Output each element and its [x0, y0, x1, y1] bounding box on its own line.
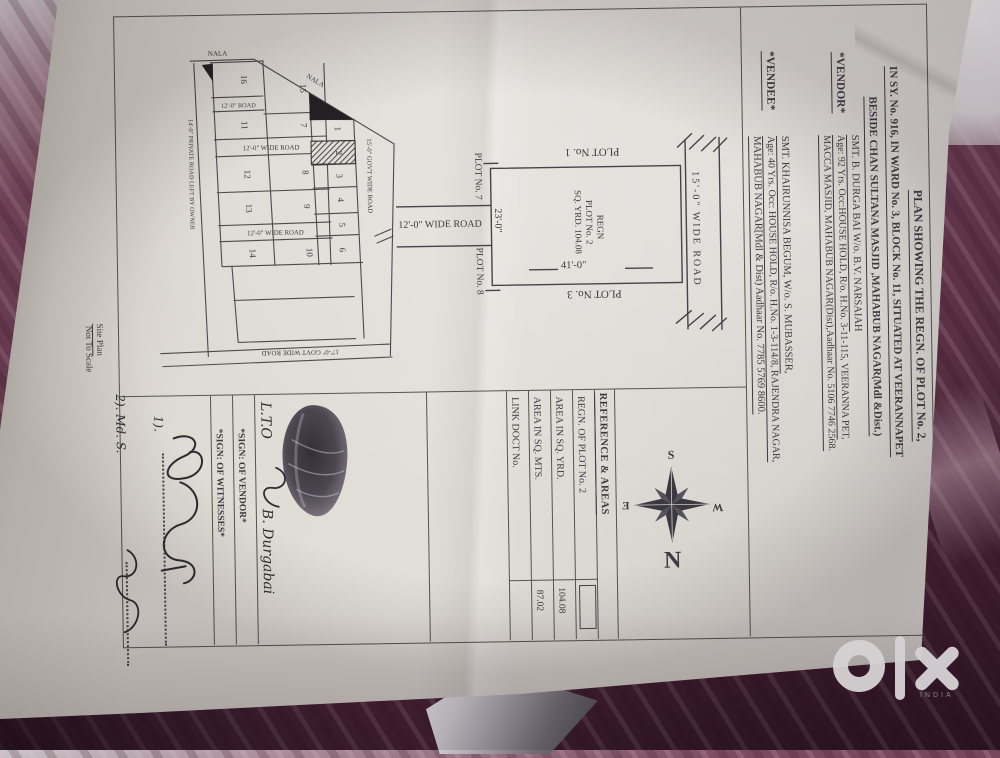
- plot-2-center-area: SQ. YRD. 104.08: [573, 190, 585, 286]
- olx-x: [912, 643, 962, 693]
- plot-number-3: 3: [335, 173, 345, 178]
- compass-e-reversed: Ǝ: [622, 500, 630, 512]
- witness1-signature: [140, 430, 217, 596]
- compass-n: N: [664, 547, 682, 571]
- plot-number-13: 13: [244, 204, 254, 214]
- wide-road-15-label: 15'-0" WIDE ROAD: [690, 171, 703, 311]
- site-plan-map: 16 11 12 13 14 15 7 8 9 10 1 2 3 4 5 6 N…: [145, 32, 400, 376]
- vendee-label: *VENDEE*: [764, 51, 777, 131]
- compass-s: S: [668, 448, 675, 462]
- vendor-handwriting-lto: L.T.O: [257, 402, 274, 472]
- reference-row3-label: AREA IN SQ. MTS.: [531, 397, 544, 545]
- road-label-14-0-private: 14'-0" PRIVATE ROAD LEFT BY OWNER: [187, 119, 196, 231]
- road-line-outer: [719, 137, 722, 330]
- compass-icon: S Ǝ W N: [614, 440, 731, 572]
- plot-number-12: 12: [242, 170, 252, 179]
- olx-o: [833, 640, 885, 692]
- nala-label-1: NALA: [208, 50, 228, 58]
- plot-number-14: 14: [248, 249, 258, 259]
- vendor-handwriting-name: B. Durgabai: [259, 509, 277, 649]
- plot-number-2: 2: [334, 150, 344, 155]
- road-label-15-0-govt: 15'-0" GOVT WIDE ROAD: [365, 138, 373, 213]
- plot-number-1: 1: [333, 127, 343, 132]
- olx-country-label: INDIA: [920, 692, 954, 699]
- plot-number-9: 9: [302, 204, 312, 209]
- plot-number-7: 7: [299, 123, 309, 128]
- road-label-12-0-wide-1: 12'-0" WIDE ROAD: [243, 144, 300, 152]
- road-label-12-0-wide-2: 12'-0" WIDE ROAD: [247, 229, 304, 237]
- plot-no-7-label: PLOT No. 7: [472, 153, 483, 211]
- plot-2-center-plotno: PLOT No. 2: [584, 200, 595, 276]
- reference-row2-label: AREA IN SQ. YRD.: [553, 396, 566, 546]
- road-hatch-bottom: [676, 310, 727, 332]
- reference-row4-label: LINK DOCT No.: [509, 397, 522, 525]
- photo-of-plot-plan-document: { "photo": { "watermark_country": "INDIA…: [0, 0, 1000, 750]
- plot-number-11: 11: [240, 121, 250, 130]
- compass-w-inverted: W: [712, 501, 723, 513]
- reference-row3-value: 87.02: [534, 590, 545, 632]
- hatched-plot-2: [311, 141, 355, 165]
- plot-no-1-label: PLOT No. 1: [545, 145, 639, 158]
- plot-number-10: 10: [305, 248, 315, 258]
- plot-number-8: 8: [300, 170, 310, 175]
- plot-number-6: 6: [338, 247, 348, 252]
- plot-no-3-label: PLOT No. 3: [547, 287, 641, 300]
- corner-filled-triangle: [202, 64, 213, 82]
- site-plan-note-scale: Not To Scale: [84, 326, 95, 394]
- dimension-23-0: 23'-0": [492, 208, 504, 260]
- plot-2-center-regn: REGN: [595, 215, 606, 261]
- road-label-12-0: 12'-0" ROAD: [221, 102, 256, 110]
- vendor-handwriting-flourish: [252, 464, 293, 511]
- road-label-17-0-govt: 17'-0" GOVT WIDE ROAD: [262, 348, 339, 356]
- plot-number-16: 16: [239, 75, 249, 85]
- road-line-inner: [685, 139, 688, 329]
- legend-swatch-plot-2: [579, 585, 597, 629]
- plot-number-15: 15: [298, 84, 308, 94]
- wide-road-12-label: 12'-0" WIDE ROAD: [398, 219, 482, 231]
- reference-row2-value: 104.08: [556, 587, 567, 635]
- olx-logo: INDIA: [826, 608, 996, 718]
- olx-l: [895, 636, 905, 700]
- site-plan-note-title: Site Plan: [95, 324, 106, 386]
- witness2-prefix: 2). Md. S.: [113, 394, 130, 554]
- plot-number-4: 4: [336, 197, 346, 202]
- plot-no-8-label: PLOT No. 8: [474, 248, 485, 308]
- vendor-label: *VENDOR*: [834, 52, 847, 132]
- plot-number-5: 5: [337, 222, 347, 227]
